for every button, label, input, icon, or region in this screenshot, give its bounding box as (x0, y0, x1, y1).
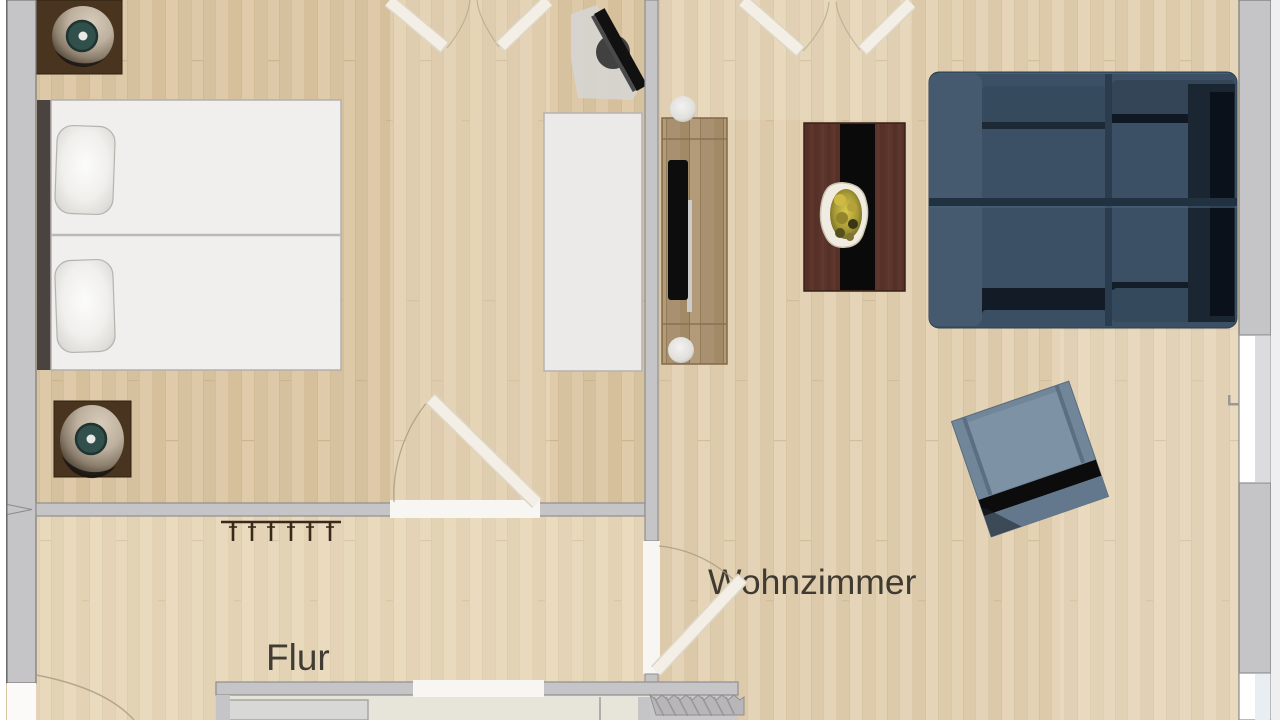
svg-text:Flur: Flur (266, 637, 330, 678)
